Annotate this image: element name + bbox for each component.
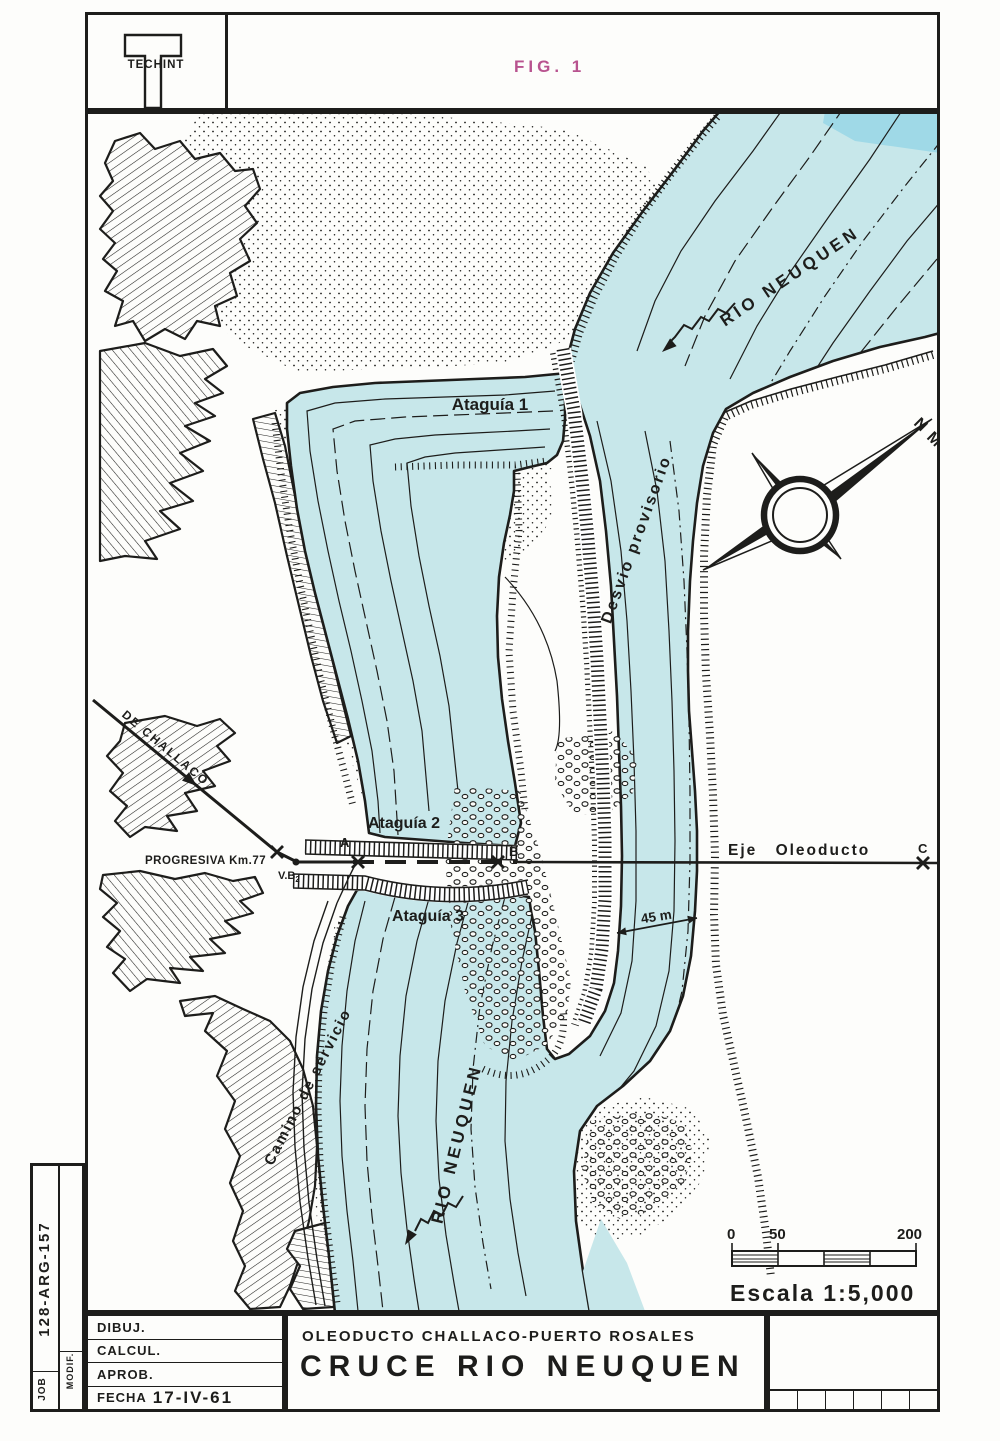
revision-cells — [770, 1389, 937, 1409]
signature-rows: DIBUJ. CALCUL. APROB. FECHA17-IV-61 — [85, 1313, 285, 1412]
revision-box — [767, 1313, 940, 1412]
job-label: JOB — [37, 1359, 51, 1419]
job-block-divider — [58, 1166, 60, 1409]
compass-ring — [764, 479, 836, 551]
point-b-label: B — [509, 844, 518, 859]
row-calcul-label: CALCUL. — [97, 1343, 161, 1358]
title-strip: TECHINT FIG. 1 — [85, 12, 940, 111]
techint-logo-text: TECHINT — [128, 59, 185, 71]
row-dibuj: DIBUJ. — [88, 1316, 282, 1340]
row-fecha: FECHA17-IV-61 — [88, 1387, 282, 1410]
project-line: OLEODUCTO CHALLACO-PUERTO ROSALES — [302, 1328, 696, 1345]
drawing-title: CRUCE RIO NEUQUEN — [300, 1350, 746, 1384]
scale-tick-0: 0 — [727, 1226, 735, 1243]
pipeline-axis-label: Eje Oleoducto — [728, 842, 870, 859]
progresiva-label: PROGRESIVA Km.77 — [145, 855, 266, 867]
scale-tick-200: 200 — [897, 1226, 922, 1243]
techint-logo-box: TECHINT — [88, 15, 228, 108]
figure-label: FIG. 1 — [514, 57, 585, 77]
ataguia-3-label: Ataguía 3 — [392, 908, 464, 925]
row-fecha-label: FECHA — [97, 1390, 147, 1405]
job-block: 128-ARG-157 JOB MODIF. — [30, 1163, 85, 1412]
drawing-title-box: OLEODUCTO CHALLACO-PUERTO ROSALES CRUCE … — [285, 1313, 767, 1412]
row-aprob-label: APROB. — [97, 1367, 154, 1382]
row-aprob: APROB. — [88, 1363, 282, 1387]
job-number: 128-ARG-157 — [36, 1179, 54, 1379]
scale-tick-50: 50 — [769, 1226, 786, 1243]
row-fecha-value: 17-IV-61 — [153, 1388, 233, 1408]
row-dibuj-label: DIBUJ. — [97, 1320, 146, 1335]
vertex-dot — [293, 859, 300, 866]
ataguia-1-label: Ataguía 1 — [452, 395, 529, 414]
ataguia-2-label: Ataguía 2 — [368, 815, 440, 832]
techint-logo-icon: TECHINT — [88, 15, 225, 108]
modif-label: MODIF. — [65, 1336, 79, 1406]
point-c-label: C — [918, 841, 928, 856]
point-a-label: A — [340, 835, 350, 850]
scale-caption: Escala 1:5,000 — [730, 1280, 915, 1306]
drawing-sheet: TECHINT FIG. 1 — [0, 0, 1000, 1441]
site-plan-map: 0 50 200 Escala 1:5,000 RIO NEUQUEN RIO … — [85, 111, 940, 1313]
map-area: 0 50 200 Escala 1:5,000 RIO NEUQUEN RIO … — [85, 111, 940, 1313]
row-calcul: CALCUL. — [88, 1340, 282, 1364]
